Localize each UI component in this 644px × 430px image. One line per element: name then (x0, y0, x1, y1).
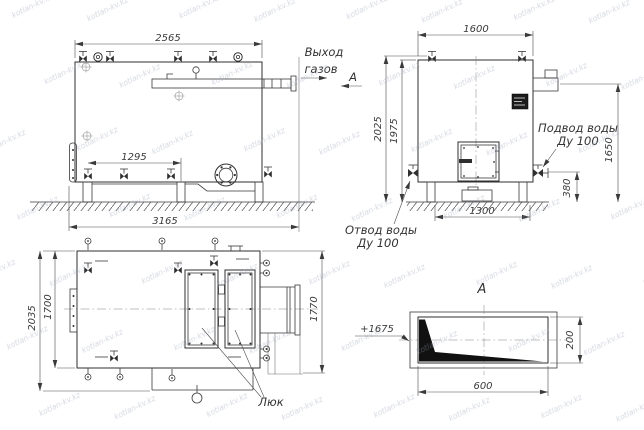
technical-drawing: kotlan-kv.kz kotlan-kv.kz (0, 0, 644, 430)
drawing-canvas: kotlan-kv.kz kotlan-kv.kz (0, 0, 644, 430)
watermark-layer (0, 0, 644, 430)
